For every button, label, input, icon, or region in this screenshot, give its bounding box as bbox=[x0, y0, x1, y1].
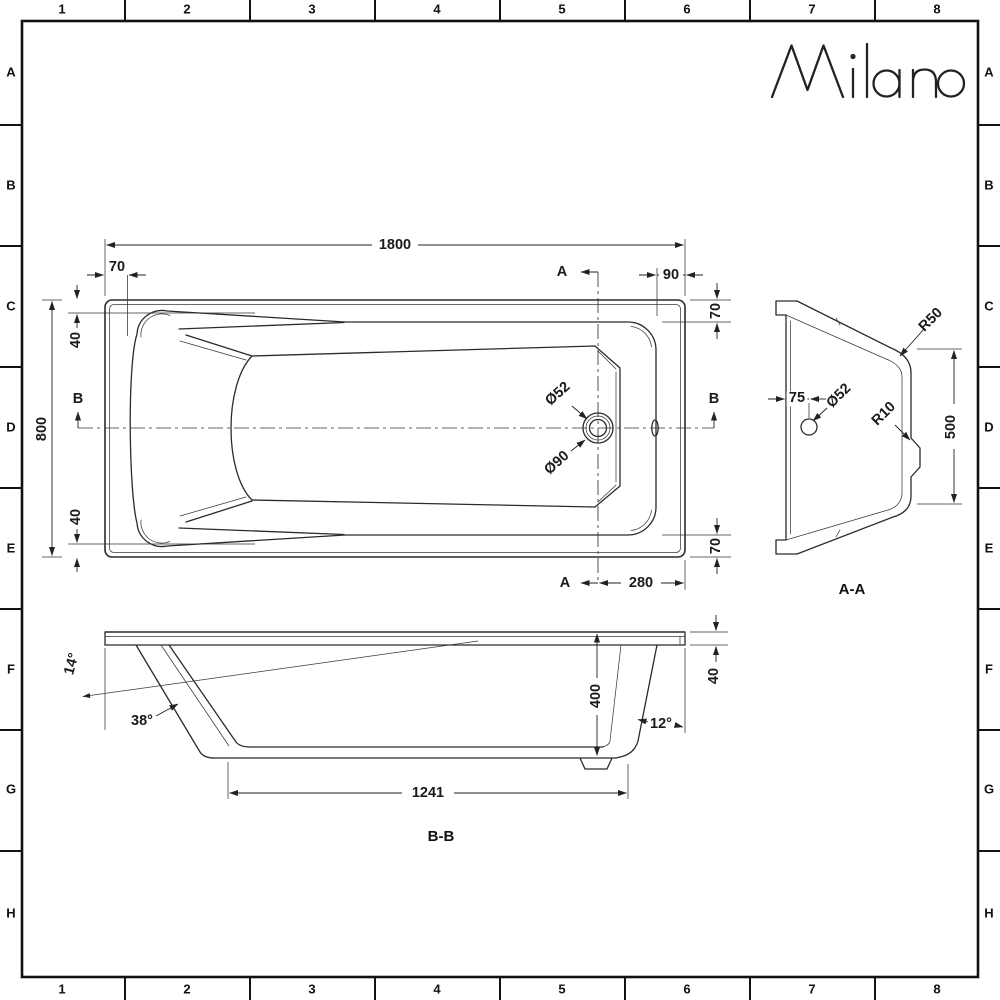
dim-rim-height: 40 bbox=[690, 615, 728, 684]
dim-head-angle: 14° bbox=[61, 641, 478, 697]
dim-overflow-offset: 75 bbox=[768, 390, 826, 418]
brand-name: Milano bbox=[775, 51, 905, 100]
dim-text: 12° bbox=[650, 716, 672, 732]
dim-text: R10 bbox=[869, 399, 899, 429]
grid-row-label: B bbox=[6, 177, 15, 192]
section-aa-profile bbox=[776, 301, 920, 554]
label-waste-flange-dia: Ø90 bbox=[541, 440, 585, 478]
grid-row-label: F bbox=[985, 661, 993, 676]
section-marker-b-right: B bbox=[709, 391, 719, 428]
dim-text: 40 bbox=[68, 509, 84, 525]
grid-row-label: E bbox=[7, 540, 16, 555]
overflow-hole-section bbox=[801, 419, 817, 435]
dim-text: 280 bbox=[629, 575, 653, 591]
plan-view: A A B B 1800 800 bbox=[34, 237, 731, 591]
dim-head-inset-top: 40 bbox=[68, 285, 255, 348]
dim-overall-length: 1800 bbox=[105, 237, 685, 296]
technical-drawing: 1 2 3 4 5 6 7 8 1 2 3 4 5 6 7 8 A B C D … bbox=[0, 0, 1000, 1000]
dim-overall-width: 800 bbox=[34, 300, 62, 557]
grid-col-label: 7 bbox=[808, 1, 815, 16]
dim-head-inset-bottom: 40 bbox=[68, 509, 255, 572]
drawing-sheet: 1 2 3 4 5 6 7 8 1 2 3 4 5 6 7 8 A B C D … bbox=[0, 0, 1000, 1000]
section-letter: B bbox=[709, 391, 719, 407]
dim-text: 40 bbox=[68, 332, 84, 348]
grid-row-label: E bbox=[985, 540, 994, 555]
dim-text: 70 bbox=[109, 259, 125, 275]
grid-ticks bbox=[0, 0, 1000, 1000]
dim-text: Ø52 bbox=[824, 381, 855, 412]
dim-text: R50 bbox=[916, 305, 946, 335]
section-letter: A bbox=[557, 264, 568, 280]
grid-row-label: H bbox=[6, 905, 15, 920]
grid-col-label: 4 bbox=[433, 981, 441, 996]
grid-row-label: B bbox=[984, 177, 993, 192]
title-border: 1 2 3 4 5 6 7 8 1 2 3 4 5 6 7 8 A B C D … bbox=[0, 0, 1000, 1000]
dim-base-width: 500 bbox=[917, 349, 962, 504]
dim-rim-foot: 90 bbox=[639, 267, 703, 316]
dim-text: 75 bbox=[789, 390, 805, 406]
drain-boss bbox=[580, 758, 612, 769]
section-marker-a-top: A bbox=[557, 264, 598, 280]
dim-text: 70 bbox=[708, 303, 724, 319]
dim-text: Ø52 bbox=[542, 379, 573, 409]
grid-row-label: G bbox=[984, 781, 994, 796]
brand-logo: Milano bbox=[772, 44, 964, 100]
dim-text: 38° bbox=[131, 713, 153, 729]
dim-rim-side-top: 70 bbox=[662, 283, 731, 339]
grid-col-label: 7 bbox=[808, 981, 815, 996]
section-marker-b-left: B bbox=[73, 391, 83, 428]
grid-col-label: 6 bbox=[683, 981, 690, 996]
grid-col-label: 1 bbox=[58, 1, 65, 16]
grid-row-label: D bbox=[6, 419, 15, 434]
dim-text: 800 bbox=[34, 417, 50, 441]
grid-row-label: A bbox=[984, 64, 994, 79]
grid-row-label: H bbox=[984, 905, 993, 920]
section-letter: A bbox=[560, 575, 571, 591]
grid-col-label: 2 bbox=[183, 1, 190, 16]
grid-row-label: G bbox=[6, 781, 16, 796]
dim-base-length: 1241 bbox=[228, 762, 628, 801]
section-aa-label: A-A bbox=[839, 581, 866, 598]
dim-text: 40 bbox=[706, 668, 722, 684]
dim-text: 14° bbox=[61, 651, 82, 677]
grid-row-label: A bbox=[6, 64, 16, 79]
grid-col-label: 2 bbox=[183, 981, 190, 996]
dim-text: 90 bbox=[663, 267, 679, 283]
dim-text: 1800 bbox=[379, 237, 411, 253]
grid-col-label: 1 bbox=[58, 981, 65, 996]
section-aa-view: 75 Ø52 R50 R10 500 A-A bbox=[768, 301, 962, 598]
label-recess-radius: R10 bbox=[869, 399, 910, 440]
grid-row-label: F bbox=[7, 661, 15, 676]
grid-col-label: 5 bbox=[558, 1, 565, 16]
label-overflow-dia: Ø52 bbox=[813, 381, 854, 421]
dim-text: 70 bbox=[708, 538, 724, 554]
label-waste-dia: Ø52 bbox=[542, 379, 587, 419]
dim-backrest-angle: 38° bbox=[105, 648, 178, 730]
grid-col-label: 5 bbox=[558, 981, 565, 996]
grid-col-label: 6 bbox=[683, 1, 690, 16]
section-bb-label: B-B bbox=[428, 828, 455, 845]
grid-col-label: 8 bbox=[933, 981, 940, 996]
grid-col-label: 8 bbox=[933, 1, 940, 16]
tub-inner-rim bbox=[110, 305, 681, 553]
grid-col-label: 3 bbox=[308, 981, 315, 996]
dim-waste-offset: 280 bbox=[600, 560, 686, 591]
section-marker-a-bottom: A bbox=[560, 575, 598, 591]
section-letter: B bbox=[73, 391, 83, 407]
grid-row-label: C bbox=[6, 298, 16, 313]
basin-floor bbox=[231, 346, 620, 507]
label-rim-radius: R50 bbox=[900, 305, 946, 356]
brand-logo-strokes bbox=[772, 44, 964, 97]
dim-depth: 400 bbox=[588, 634, 605, 756]
dim-text: 500 bbox=[943, 415, 959, 439]
dim-text: 400 bbox=[588, 684, 604, 708]
grid-col-label: 4 bbox=[433, 1, 441, 16]
grid-col-label: 3 bbox=[308, 1, 315, 16]
dim-text: 1241 bbox=[412, 785, 444, 801]
section-bb-view: 14° 38° 12° 400 40 bbox=[61, 615, 728, 845]
dim-rim-head: 70 bbox=[87, 259, 146, 336]
dim-foot-angle: 12° bbox=[638, 648, 685, 733]
grid-row-label: C bbox=[984, 298, 994, 313]
dim-rim-side-bottom: 70 bbox=[662, 518, 731, 574]
grid-row-label: D bbox=[984, 419, 993, 434]
dim-text: Ø90 bbox=[541, 448, 572, 478]
